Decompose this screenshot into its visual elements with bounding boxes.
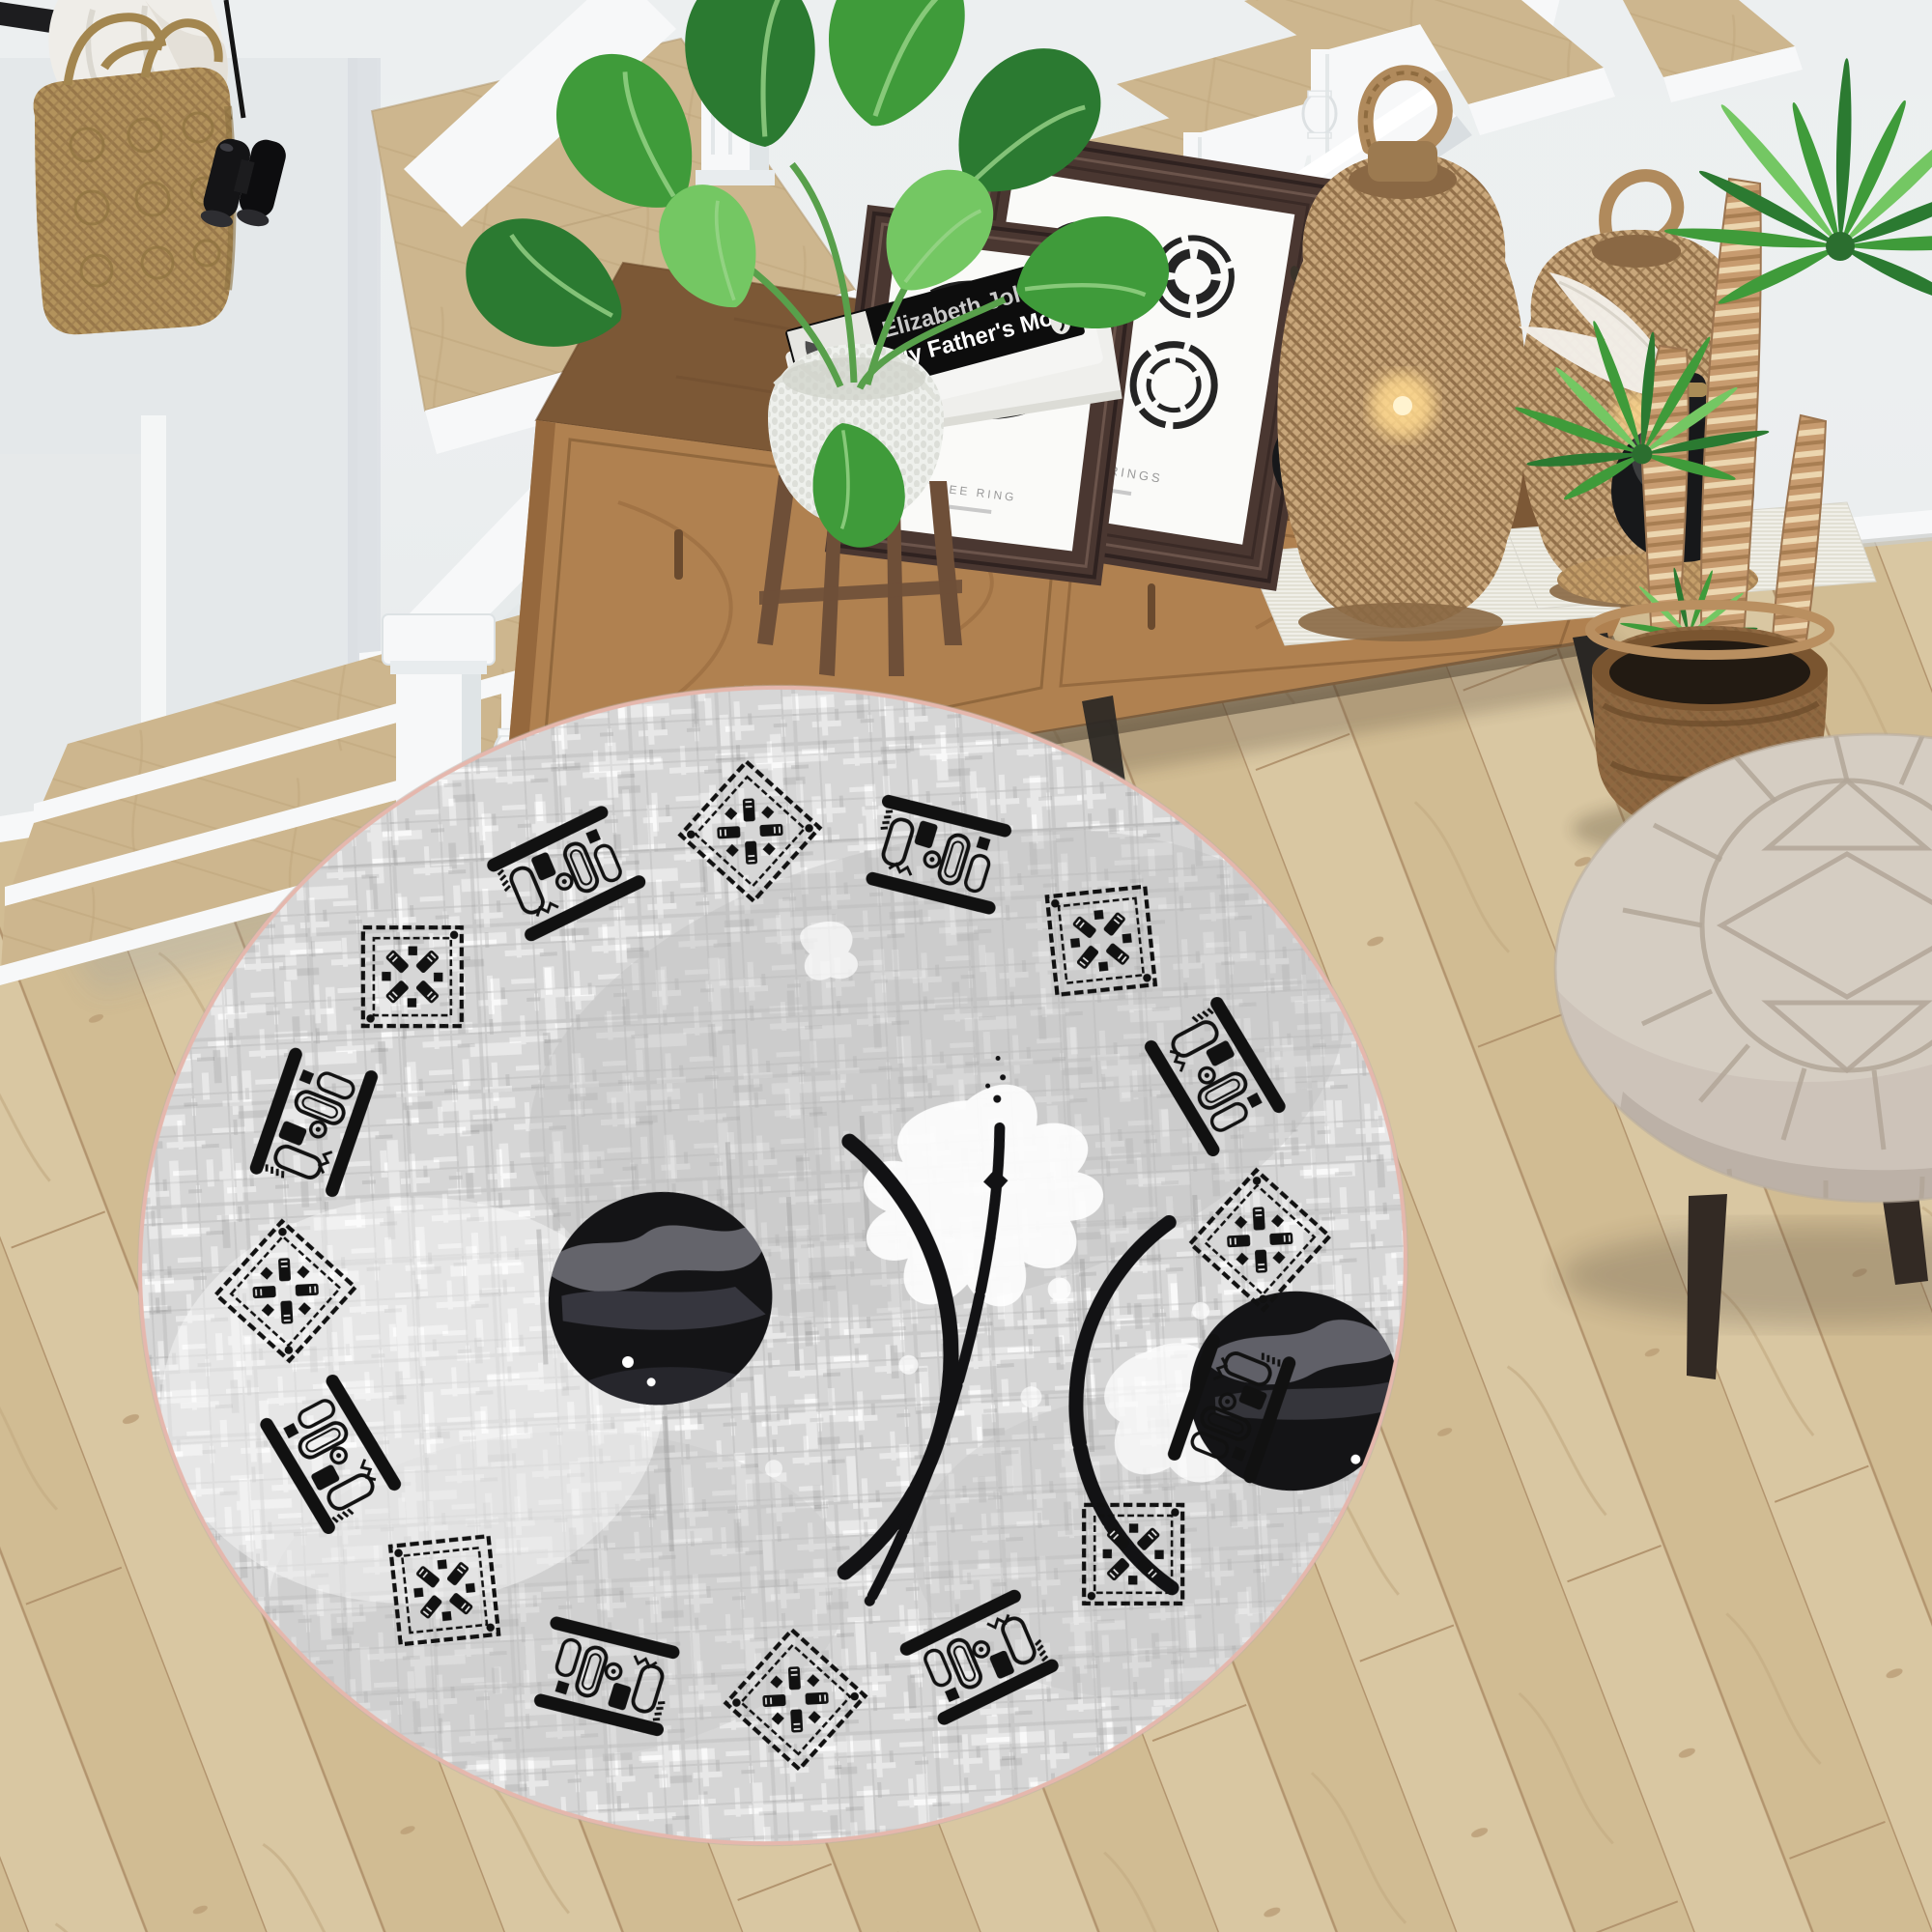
door-handle-right [1148, 583, 1155, 630]
door-handle-left [674, 529, 683, 580]
interior-scene: TREE RINGS TREE RING [0, 0, 1932, 1932]
